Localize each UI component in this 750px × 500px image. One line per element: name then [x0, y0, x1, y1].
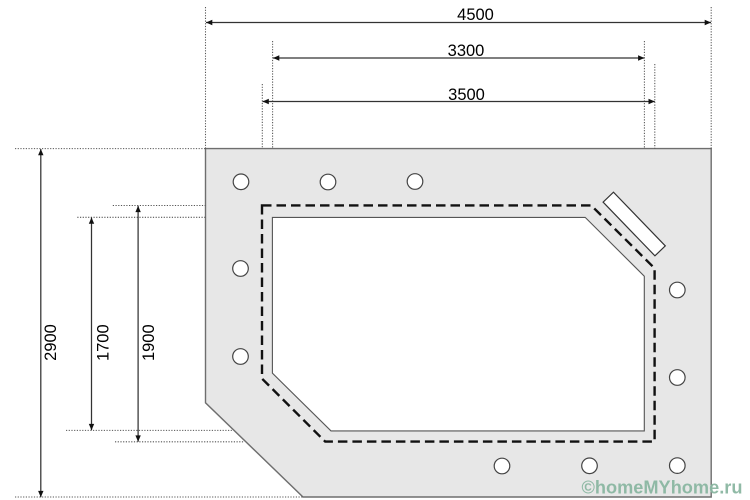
- svg-text:3300: 3300: [448, 42, 485, 60]
- svg-text:©homeMYhome.ru: ©homeMYhome.ru: [582, 478, 743, 498]
- svg-text:4500: 4500: [457, 6, 494, 24]
- svg-text:3500: 3500: [448, 86, 485, 104]
- svg-text:1700: 1700: [94, 324, 112, 361]
- svg-text:1900: 1900: [140, 324, 158, 361]
- svg-text:2900: 2900: [42, 324, 60, 361]
